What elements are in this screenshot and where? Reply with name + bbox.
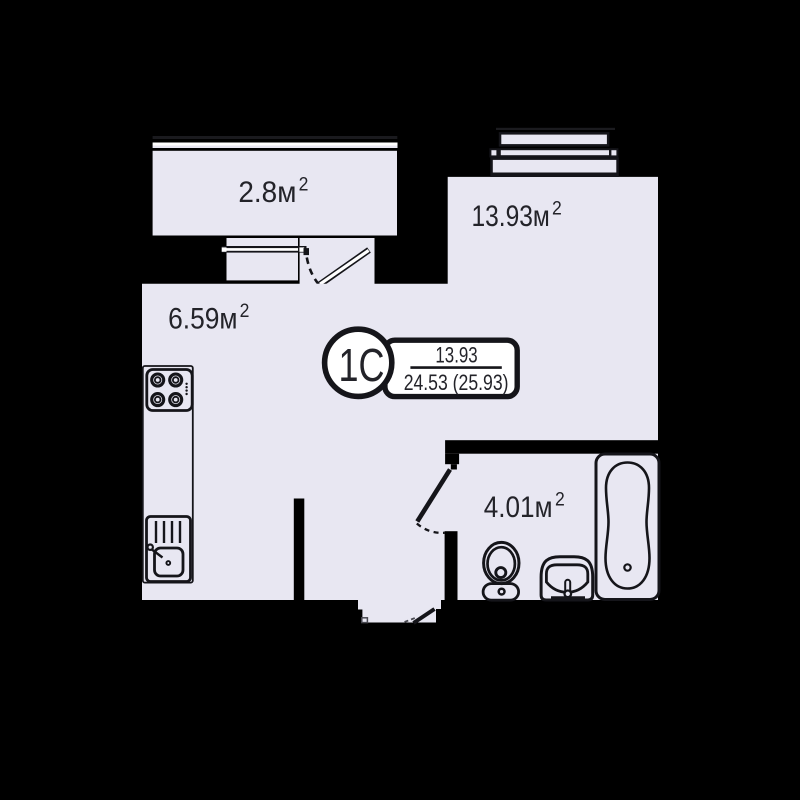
svg-text:1С: 1С [339, 339, 385, 391]
svg-text:2: 2 [240, 300, 250, 322]
svg-text:2: 2 [299, 173, 309, 195]
svg-text:2: 2 [552, 197, 562, 219]
svg-text:6.59м: 6.59м [168, 303, 237, 336]
svg-text:2: 2 [555, 489, 565, 511]
svg-text:24.53 (25.93): 24.53 (25.93) [404, 370, 509, 395]
svg-text:2.8м: 2.8м [238, 176, 296, 209]
svg-text:13.93м: 13.93м [472, 200, 550, 233]
svg-text:13.93: 13.93 [435, 343, 477, 368]
svg-text:4.01м: 4.01м [484, 491, 553, 524]
